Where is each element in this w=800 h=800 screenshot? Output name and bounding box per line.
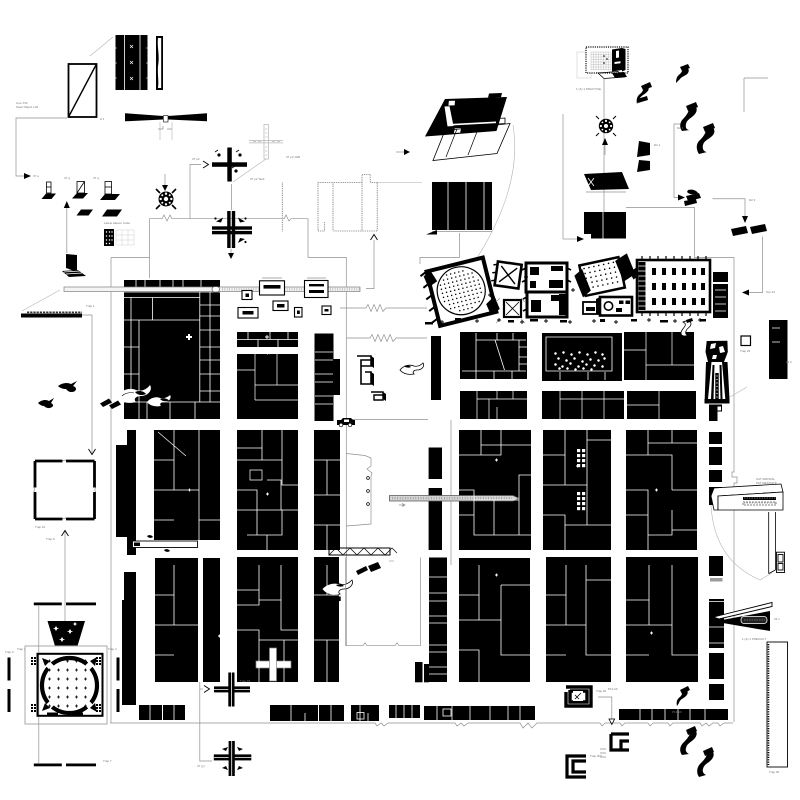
svg-text:Top 22: Top 22 [766, 290, 775, 294]
svg-text:P13 A6: P13 A6 [672, 710, 682, 714]
svg-text:D2 3: D2 3 [749, 198, 756, 202]
svg-text:37 p2 Tack: 37 p2 Tack [250, 177, 265, 181]
svg-text:1 (A) 1 PRACTICE: 1 (A) 1 PRACTICE [576, 87, 601, 91]
svg-text:P13 A6: P13 A6 [608, 687, 618, 691]
svg-text:37 q: 37 q [33, 174, 39, 178]
svg-text:37 q: 37 q [64, 176, 70, 180]
svg-text:Trap 23: Trap 23 [740, 349, 751, 353]
svg-text:A 1: A 1 [100, 117, 105, 121]
svg-text:Trap 3P2: Trap 3P2 [590, 754, 603, 758]
svg-text:Trap 3: Trap 3 [5, 650, 14, 654]
svg-text:23 2: 23 2 [786, 360, 792, 364]
svg-text:Latest Aleson Code: Latest Aleson Code [104, 221, 130, 225]
svg-text:37 (y): 37 (y) [197, 764, 205, 768]
svg-text:Trap 10: Trap 10 [35, 525, 46, 529]
svg-text:Steel Object L40: Steel Object L40 [16, 105, 39, 109]
svg-text:D2 2: D2 2 [677, 126, 684, 130]
svg-text:23 1: 23 1 [774, 617, 780, 621]
svg-text:PAT MEDITATE: PAT MEDITATE [756, 481, 777, 485]
svg-text:1 (A) 1 PRECAUT: 1 (A) 1 PRECAUT [742, 637, 766, 641]
svg-text:Trap 4: Trap 4 [108, 647, 117, 651]
svg-text:Trap P1: Trap P1 [240, 679, 251, 683]
svg-text:37 p2: 37 p2 [192, 157, 200, 161]
svg-text:Trap 9: Trap 9 [46, 537, 55, 541]
svg-text:Trap 20: Trap 20 [596, 689, 607, 693]
svg-text:Trap 7: Trap 7 [103, 759, 112, 763]
svg-text:D2 1: D2 1 [654, 143, 661, 147]
svg-text:37 p2 1HB: 37 p2 1HB [286, 155, 300, 159]
svg-text:Trap 1: Trap 1 [86, 304, 95, 308]
svg-text:Trap 46: Trap 46 [769, 770, 780, 774]
svg-text:37 q: 37 q [93, 176, 99, 180]
